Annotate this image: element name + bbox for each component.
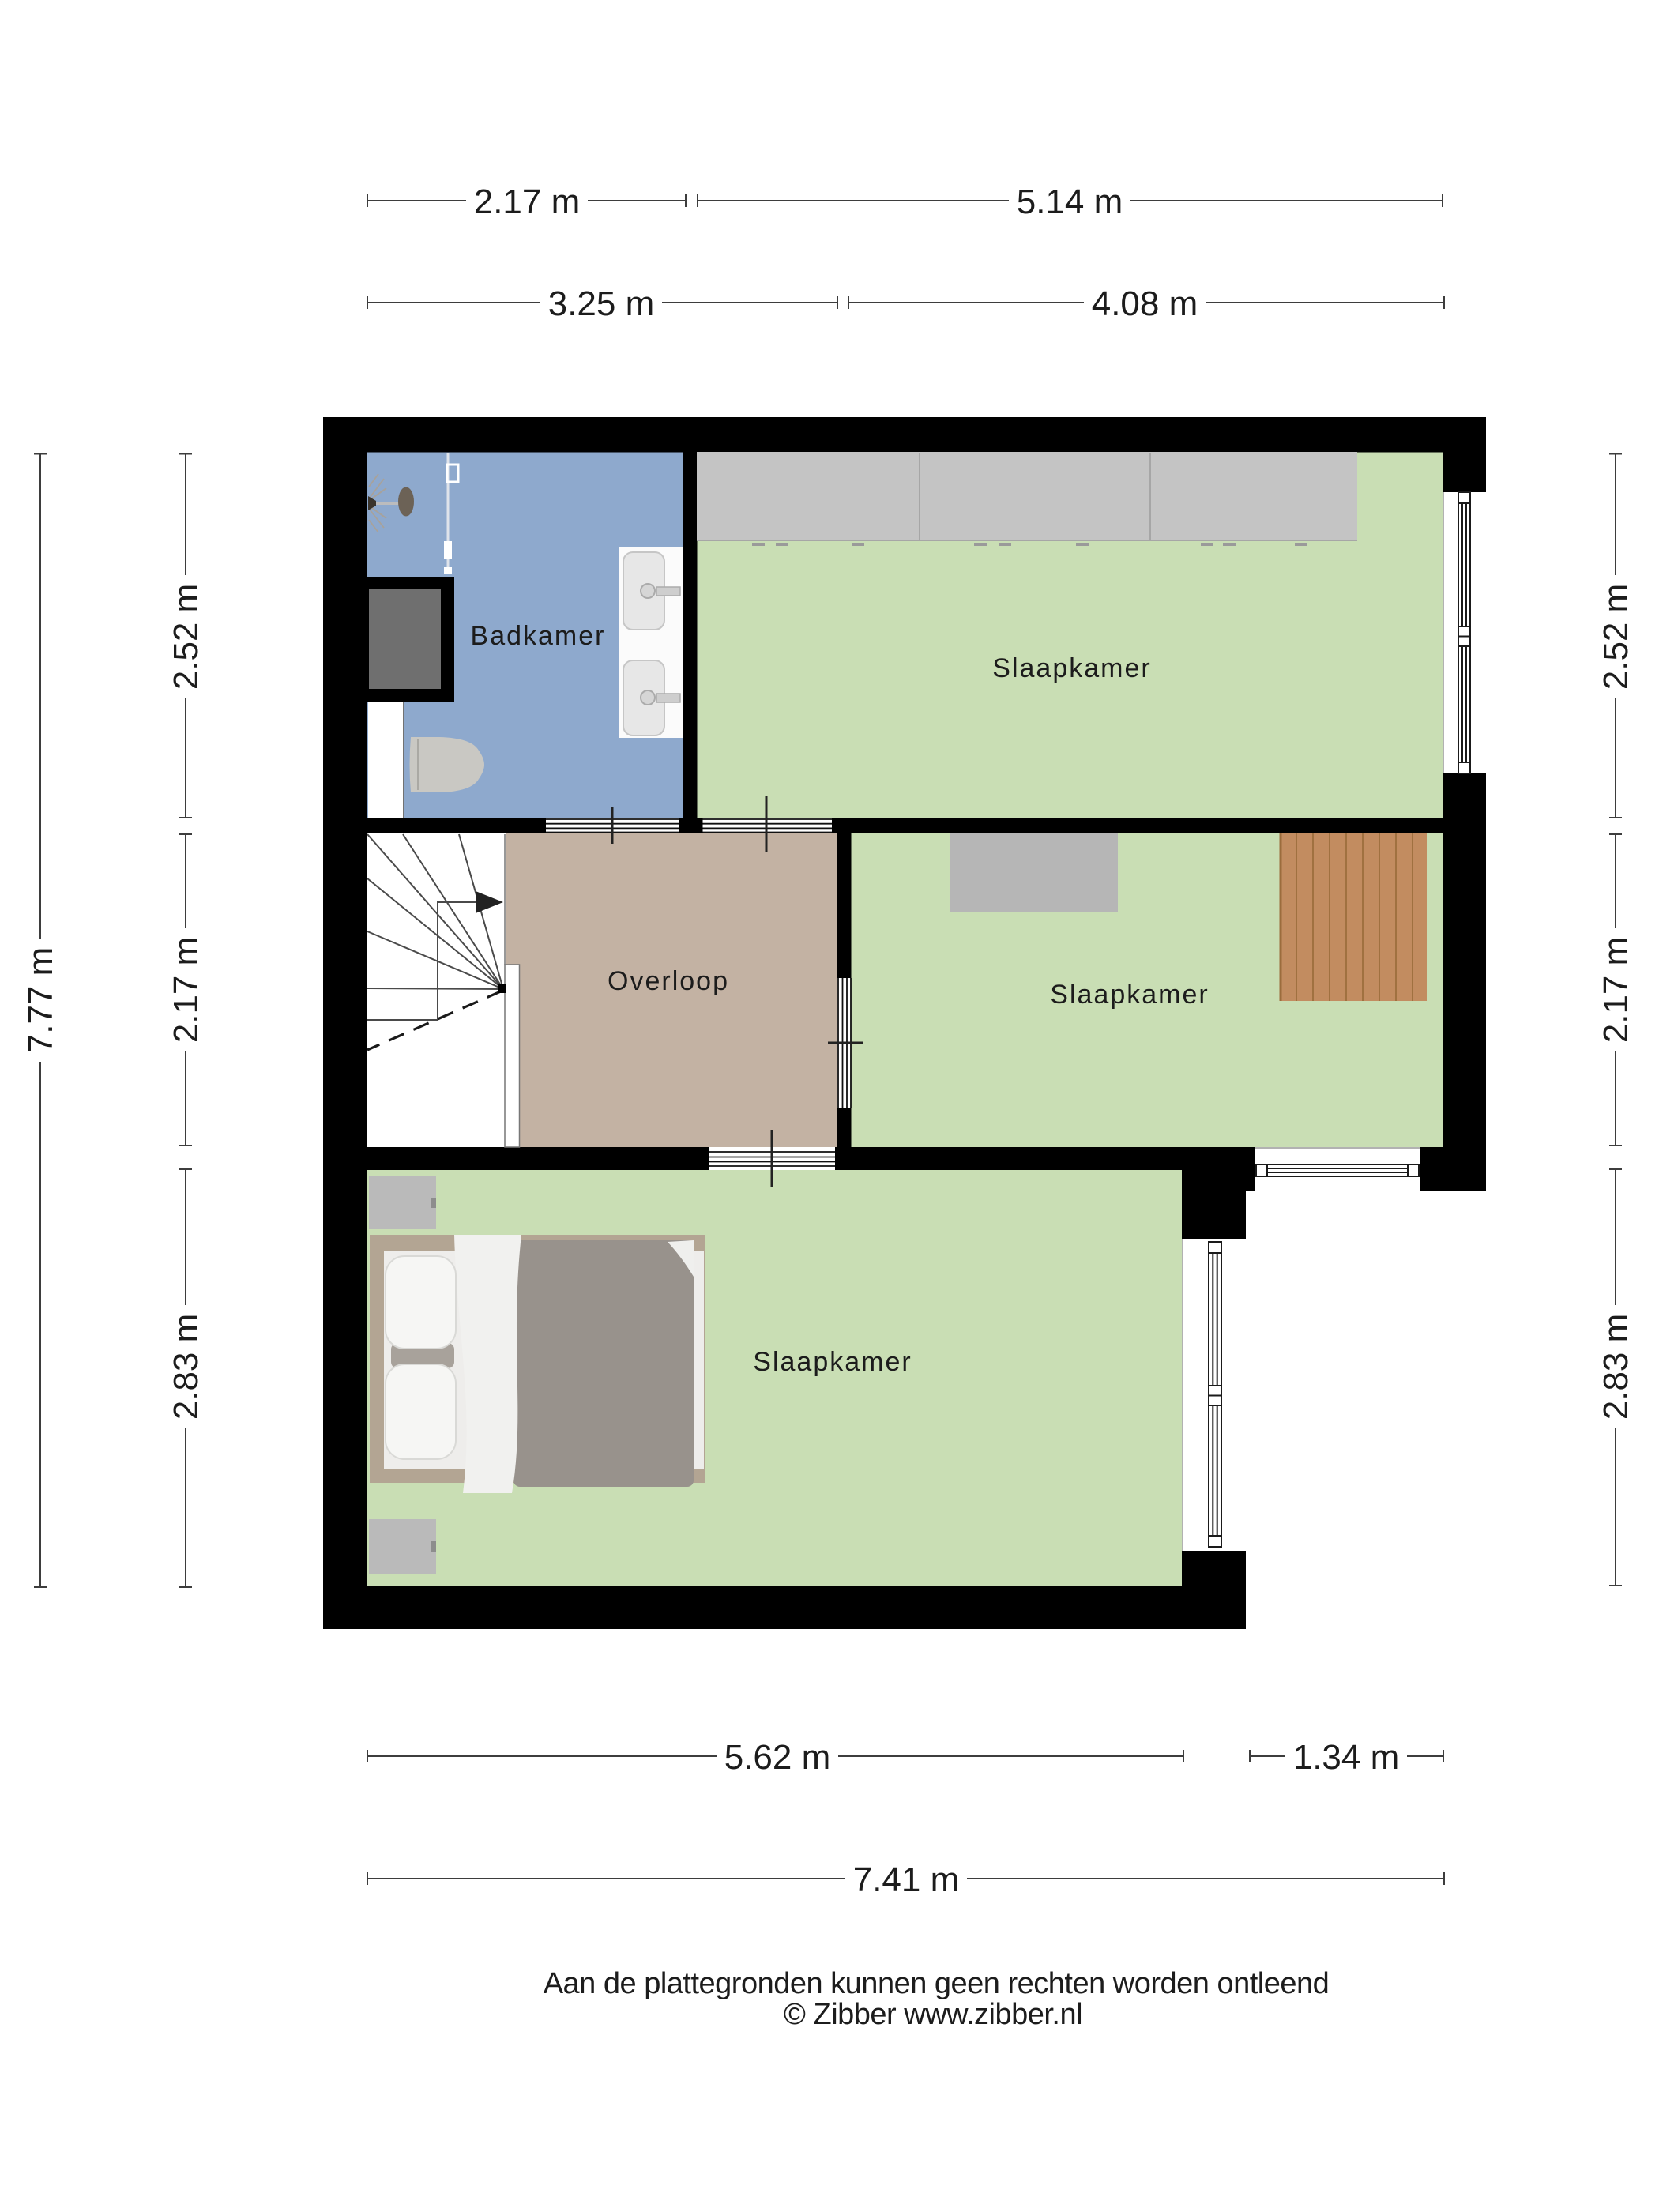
svg-text:7.77 m: 7.77 m (21, 947, 60, 1054)
svg-text:2.52 m: 2.52 m (167, 584, 205, 690)
svg-text:2.17 m: 2.17 m (1597, 937, 1635, 1044)
svg-text:5.62 m: 5.62 m (724, 1738, 831, 1777)
svg-text:Slaapkamer: Slaapkamer (992, 653, 1151, 683)
svg-text:2.83 m: 2.83 m (167, 1314, 205, 1420)
svg-text:5.14 m: 5.14 m (1017, 182, 1123, 221)
svg-text:Slaapkamer: Slaapkamer (1050, 980, 1209, 1010)
svg-text:Badkamer: Badkamer (471, 621, 606, 651)
svg-text:3.25 m: 3.25 m (548, 284, 655, 323)
svg-text:1.34 m: 1.34 m (1293, 1738, 1400, 1777)
svg-text:Overloop: Overloop (608, 966, 729, 996)
svg-text:2.17 m: 2.17 m (474, 182, 581, 221)
svg-text:2.17 m: 2.17 m (167, 937, 205, 1044)
svg-text:© Zibber www.zibber.nl: © Zibber www.zibber.nl (784, 1998, 1082, 2031)
svg-text:4.08 m: 4.08 m (1092, 284, 1198, 323)
svg-text:Slaapkamer: Slaapkamer (753, 1347, 912, 1377)
svg-text:2.52 m: 2.52 m (1597, 584, 1635, 690)
svg-text:2.83 m: 2.83 m (1597, 1314, 1635, 1420)
svg-text:Aan de plattegronden kunnen ge: Aan de plattegronden kunnen geen rechten… (544, 1967, 1330, 2000)
svg-text:7.41 m: 7.41 m (853, 1860, 960, 1899)
